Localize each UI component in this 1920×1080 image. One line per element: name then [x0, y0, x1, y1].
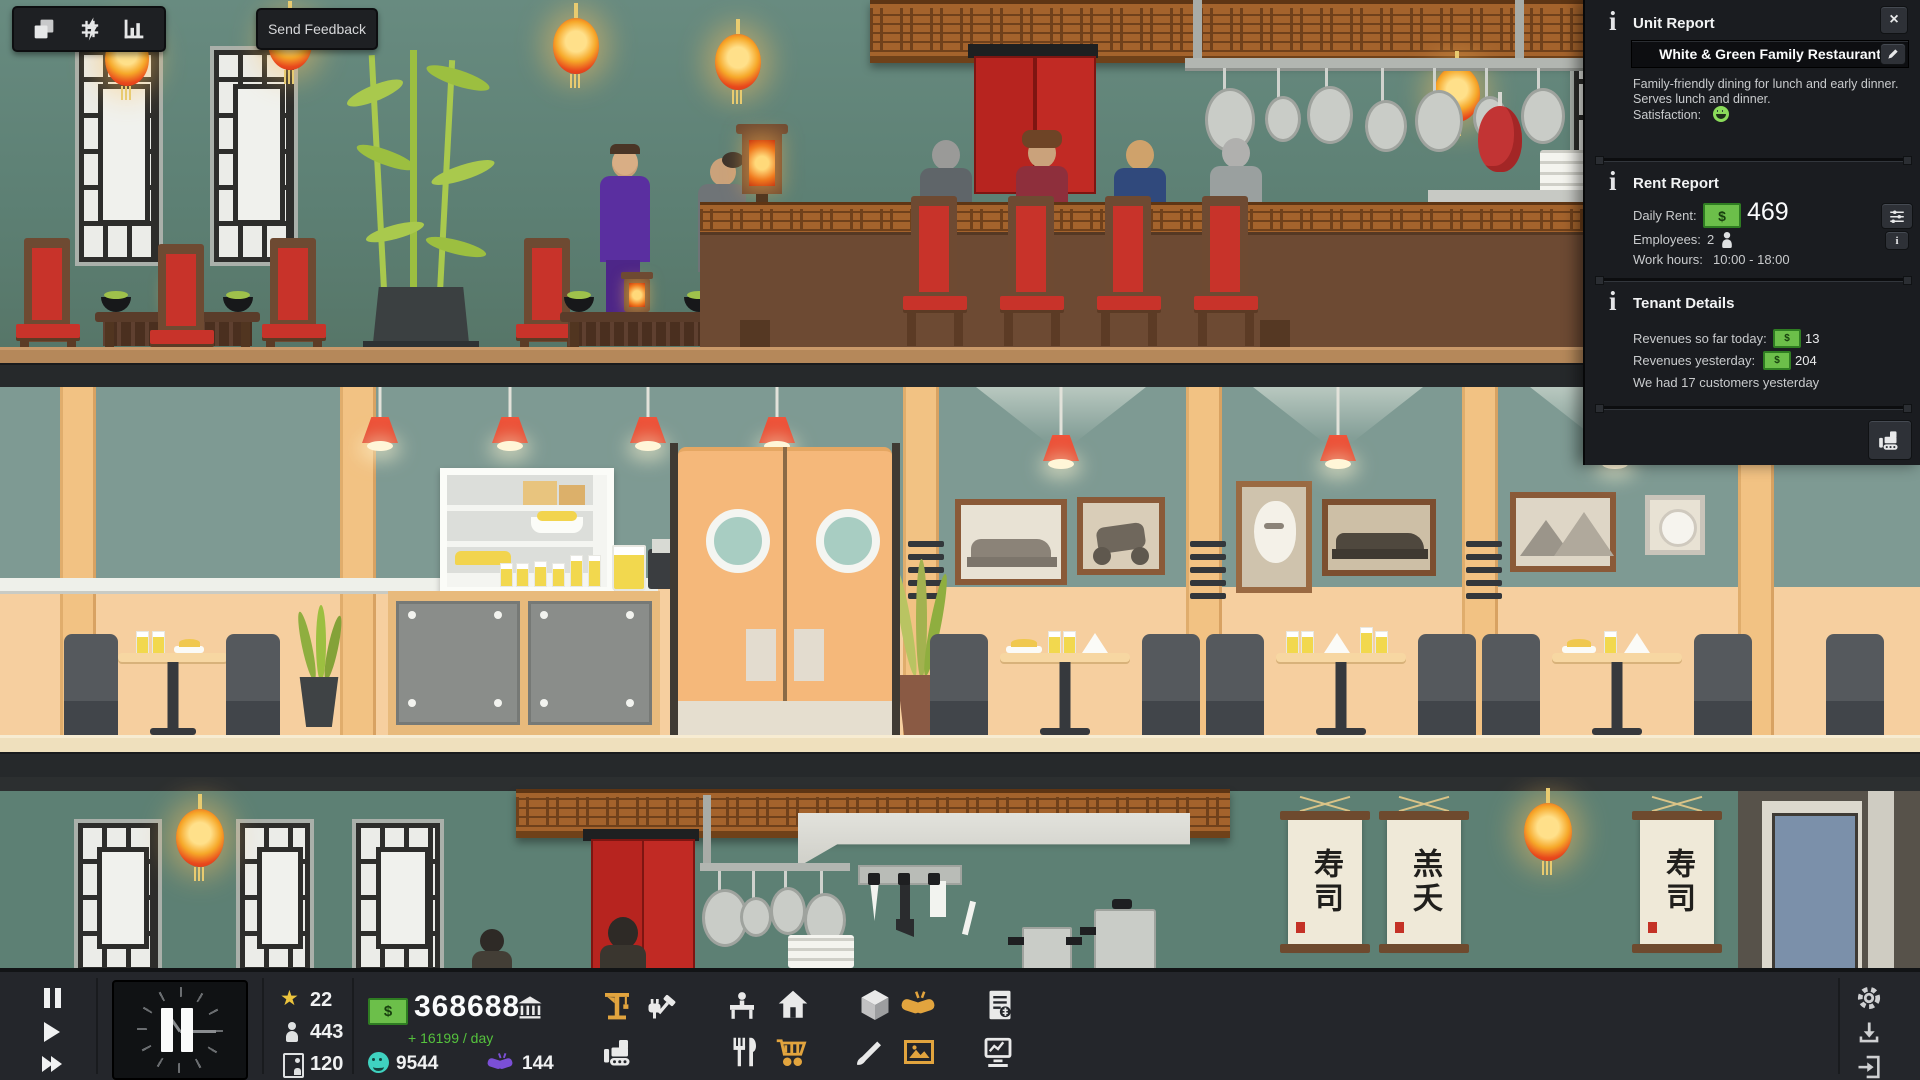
- revenues-today-value: 13: [1805, 331, 1819, 346]
- booth-bench: [226, 634, 280, 735]
- satisfaction-smiley-icon: [1713, 106, 1729, 122]
- close-icon[interactable]: ×: [1880, 6, 1908, 34]
- employees-label: Employees:: [1633, 232, 1701, 247]
- lattice-window: [74, 819, 162, 968]
- demolish-bulldozer-icon[interactable]: [601, 1034, 637, 1070]
- panel-divider: [1595, 158, 1912, 162]
- decor-brush-icon[interactable]: [851, 1034, 887, 1070]
- red-lantern: [1524, 803, 1572, 861]
- finance-report-icon[interactable]: [982, 987, 1018, 1023]
- booth-table: [118, 647, 228, 735]
- daily-rent-value: 469: [1747, 198, 1789, 227]
- contracts-handshake-icon[interactable]: [900, 987, 936, 1023]
- pendant-lamp: [1043, 387, 1079, 487]
- booth-table: [1276, 647, 1406, 735]
- bar-chair: [1194, 196, 1258, 346]
- unit-description-line2: Serves lunch and dinner.: [1633, 92, 1771, 106]
- scroll-text: 寿司: [1640, 829, 1714, 935]
- rent-info-icon[interactable]: i: [1885, 231, 1909, 250]
- employees-value: 2: [1707, 232, 1714, 247]
- tenant-details-title: Tenant Details: [1633, 295, 1734, 312]
- utilities-icon[interactable]: [644, 987, 680, 1023]
- play-button[interactable]: [44, 1022, 60, 1042]
- wall-picture-plate: [1645, 495, 1705, 555]
- wall-picture-portrait: [1236, 481, 1312, 593]
- settings-gear-icon[interactable]: [1855, 984, 1883, 1012]
- unit-report-panel: i Unit Report × White & Green Family Res…: [1583, 0, 1920, 465]
- diner-cabinet: [388, 591, 660, 735]
- wall-picture-car2: [1322, 499, 1436, 576]
- pendant-lamp: [362, 387, 398, 487]
- paused-indicator: [161, 1008, 173, 1052]
- red-lantern: [553, 18, 599, 74]
- hanging-ham: [1478, 92, 1522, 176]
- paused-indicator: [181, 1008, 193, 1052]
- booth-bench: [1142, 634, 1200, 735]
- info-icon: i: [1609, 8, 1617, 35]
- offices-icon[interactable]: [724, 987, 760, 1023]
- elevator-shaft-wall: [1738, 791, 1920, 968]
- send-feedback-button[interactable]: Send Feedback: [256, 8, 378, 50]
- info-icon: i: [1609, 168, 1617, 195]
- view-toolbar: [12, 6, 166, 52]
- bar-chair: [1097, 196, 1161, 346]
- lattice-window: [236, 819, 314, 968]
- daily-rent-label: Daily Rent:: [1633, 208, 1697, 223]
- booth-bench: [1418, 634, 1476, 735]
- customers-yesterday-line: We had 17 customers yesterday: [1633, 375, 1819, 390]
- calligraphy-scroll: 寿司: [1288, 817, 1362, 947]
- deals-value: 144: [522, 1053, 554, 1075]
- unit-name: White & Green Family Restaurant: [1659, 46, 1881, 62]
- booth-bench: [1206, 634, 1264, 735]
- housing-icon[interactable]: [775, 987, 811, 1023]
- layers-view-icon[interactable]: [30, 15, 58, 43]
- potted-plant: [284, 611, 354, 735]
- demolish-bulldozer-icon[interactable]: [1868, 420, 1912, 460]
- retail-cart-icon[interactable]: [773, 1034, 809, 1070]
- red-lantern: [715, 34, 761, 90]
- star-count: 22: [310, 989, 332, 1012]
- rename-pencil-icon[interactable]: [1880, 43, 1906, 65]
- money-balance: 368688: [414, 990, 520, 1024]
- wall-picture-mountains: [1510, 492, 1616, 572]
- unit-description-line1: Family-friendly dining for lunch and ear…: [1633, 77, 1898, 91]
- happiness-icon: [368, 1052, 389, 1073]
- scroll-text: 羔夭: [1387, 829, 1461, 935]
- booth-bench: [1482, 634, 1540, 735]
- research-computer-icon[interactable]: [980, 1034, 1016, 1070]
- construction-crane-icon[interactable]: [599, 987, 635, 1023]
- save-download-icon[interactable]: [1855, 1019, 1883, 1047]
- revenues-yesterday-label: Revenues yesterday:: [1633, 353, 1755, 368]
- floor-strip: [0, 735, 1920, 752]
- art-picture-icon[interactable]: [901, 1034, 937, 1070]
- booth-table: [1552, 647, 1682, 735]
- knife-rack: [858, 865, 958, 945]
- floor-chinese-restaurant-bottom[interactable]: 寿司 羔夭 寿司: [0, 777, 1920, 968]
- wall-picture-motorcycle: [1077, 497, 1165, 575]
- pendant-lamp: [630, 387, 666, 487]
- money-bill-icon: $: [1763, 351, 1791, 370]
- info-icon: i: [1609, 288, 1617, 315]
- booth-bench: [1694, 634, 1752, 735]
- work-hours-value: 10:00 - 18:00: [1713, 252, 1790, 267]
- restaurant-icon[interactable]: [726, 1034, 762, 1070]
- plate-stack: [788, 935, 854, 968]
- population-icon: [286, 1022, 298, 1042]
- dining-chair: [262, 238, 326, 360]
- unit-name-field[interactable]: White & Green Family Restaurant: [1631, 40, 1909, 68]
- calligraphy-scroll: 寿司: [1640, 817, 1714, 947]
- panel-divider: [1595, 278, 1912, 282]
- game-clock: [112, 980, 248, 1080]
- lattice-window: [352, 819, 444, 968]
- stock-pots: [960, 897, 1160, 968]
- bottom-hud: ★ 22 443 120 $ 368688 + 16199 / day 9544…: [0, 968, 1920, 1080]
- fast-forward-button[interactable]: [42, 1056, 64, 1072]
- wall-vent: [1190, 541, 1226, 601]
- utilities-grid-icon[interactable]: [76, 15, 104, 43]
- diner-double-doors: [670, 443, 900, 735]
- exit-door-icon[interactable]: [1855, 1053, 1883, 1080]
- booth-bench: [1826, 634, 1884, 735]
- booth-table: [1000, 647, 1130, 735]
- unit-report-title: Unit Report: [1633, 15, 1715, 32]
- panel-divider: [1595, 406, 1912, 410]
- happiness-value: 9544: [396, 1053, 438, 1075]
- dining-chair: [16, 238, 80, 360]
- send-feedback-label: Send Feedback: [268, 21, 366, 37]
- bank-icon[interactable]: [516, 994, 544, 1022]
- worker-count: 120: [310, 1053, 343, 1076]
- bamboo-plant: [335, 55, 505, 355]
- game-viewport: 寿司 羔夭 寿司 Send Feedback i Unit Report ×: [0, 0, 1920, 1080]
- revenues-today-label: Revenues so far today:: [1633, 331, 1767, 346]
- dining-chair: [150, 244, 214, 363]
- wall-picture-car: [955, 499, 1067, 585]
- calligraphy-scroll: 羔夭: [1387, 817, 1461, 947]
- red-lantern: [176, 809, 224, 867]
- kitchen-worker: [470, 929, 514, 968]
- money-bill-icon: $: [1703, 203, 1741, 228]
- money-bill-icon: $: [1773, 329, 1801, 348]
- glassware: [500, 537, 680, 591]
- building-stats-icon[interactable]: [120, 15, 148, 43]
- worker-badge-icon: [283, 1053, 304, 1078]
- satisfaction-label: Satisfaction:: [1633, 108, 1701, 122]
- population-count: 443: [310, 1021, 343, 1044]
- goods-box-icon[interactable]: [857, 987, 893, 1023]
- income-per-day: + 16199 / day: [408, 1030, 493, 1046]
- star-icon: ★: [280, 986, 299, 1011]
- kitchen-worker: [598, 917, 648, 968]
- rent-report-title: Rent Report: [1633, 175, 1719, 192]
- wall-vent: [1466, 541, 1502, 601]
- pause-button[interactable]: [44, 988, 61, 1008]
- booth-bench: [64, 634, 118, 735]
- employee-person-icon: [1722, 232, 1732, 248]
- scroll-text: 寿司: [1288, 829, 1362, 935]
- deals-handshake-icon: [484, 1052, 516, 1074]
- floor-separator: [0, 752, 1920, 779]
- bar-chair: [903, 196, 967, 346]
- work-hours-label: Work hours:: [1633, 252, 1703, 267]
- bar-chair: [1000, 196, 1064, 346]
- revenues-yesterday-value: 204: [1795, 353, 1817, 368]
- pendant-lamp: [1320, 387, 1356, 487]
- rent-sliders-icon[interactable]: [1881, 203, 1913, 229]
- money-bill-icon: $: [368, 998, 408, 1025]
- booth-bench: [930, 634, 988, 735]
